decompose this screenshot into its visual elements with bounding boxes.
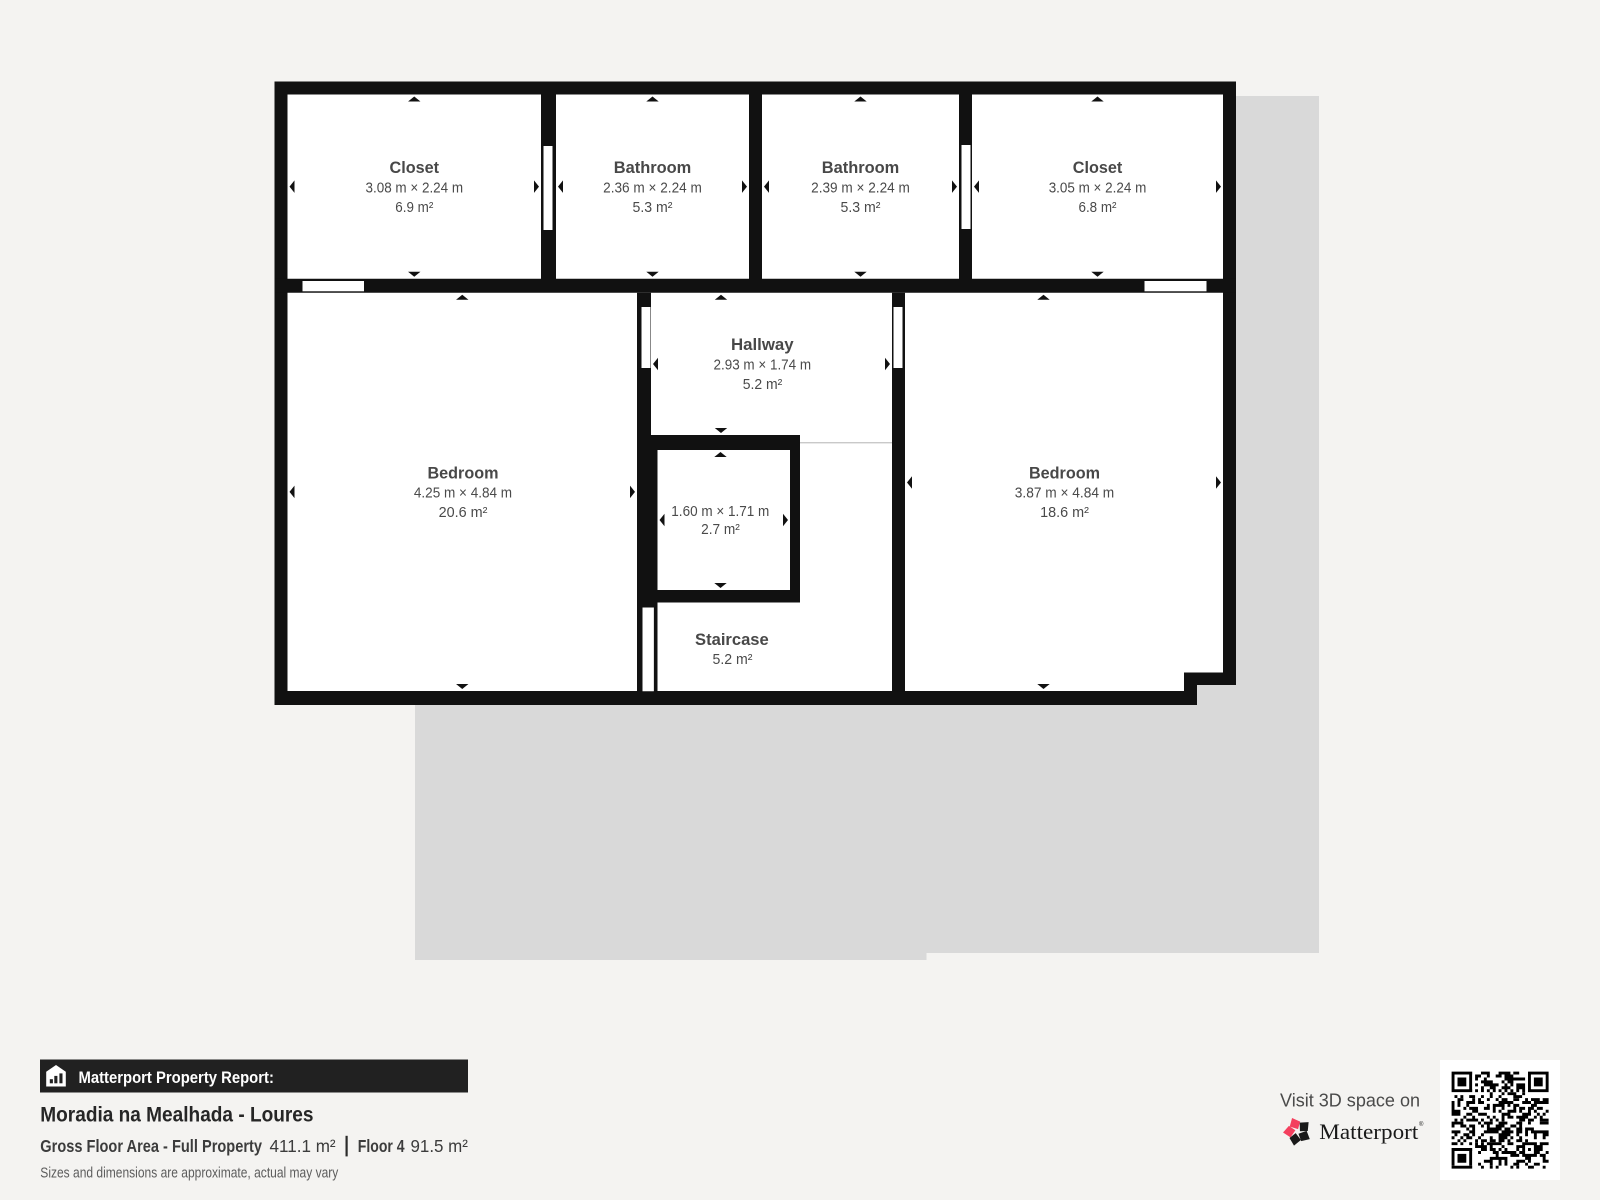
svg-text:Bedroom: Bedroom	[428, 464, 499, 483]
svg-text:Moradia na Mealhada - Loures: Moradia na Mealhada - Loures	[40, 1102, 313, 1126]
svg-text:91.5 m²: 91.5 m²	[411, 1136, 469, 1156]
svg-text:411.1 m²: 411.1 m²	[270, 1136, 336, 1156]
svg-text:5.3 m²: 5.3 m²	[841, 200, 881, 216]
svg-text:Gross Floor Area - Full Proper: Gross Floor Area - Full Property	[40, 1136, 262, 1156]
svg-text:20.6 m²: 20.6 m²	[439, 505, 488, 521]
svg-text:6.9 m²: 6.9 m²	[395, 200, 433, 216]
svg-text:Bathroom: Bathroom	[822, 158, 900, 177]
svg-text:Matterport Property Report:: Matterport Property Report:	[79, 1069, 274, 1087]
svg-text:6.8 m²: 6.8 m²	[1079, 200, 1117, 216]
svg-text:3.87 m × 4.84 m: 3.87 m × 4.84 m	[1015, 486, 1114, 502]
svg-text:2.93 m × 1.74 m: 2.93 m × 1.74 m	[714, 357, 812, 373]
svg-text:18.6 m²: 18.6 m²	[1040, 505, 1089, 521]
svg-text:Sizes and dimensions are appro: Sizes and dimensions are approximate, ac…	[40, 1166, 339, 1182]
svg-text:Hallway: Hallway	[731, 335, 794, 354]
svg-text:Matterport: Matterport	[1319, 1119, 1418, 1144]
svg-text:4.25 m × 4.84 m: 4.25 m × 4.84 m	[414, 486, 512, 502]
svg-text:Bathroom: Bathroom	[614, 158, 692, 177]
svg-text:5.2 m²: 5.2 m²	[743, 377, 783, 393]
svg-text:Visit 3D space on: Visit 3D space on	[1280, 1090, 1420, 1110]
svg-text:2.39 m × 2.24 m: 2.39 m × 2.24 m	[811, 181, 910, 197]
svg-text:®: ®	[1419, 1121, 1424, 1128]
svg-text:Staircase: Staircase	[695, 630, 769, 649]
svg-text:Closet: Closet	[390, 158, 440, 177]
svg-text:Closet: Closet	[1073, 158, 1123, 177]
svg-text:5.2 m²: 5.2 m²	[713, 652, 753, 668]
svg-text:1.60 m × 1.71 m: 1.60 m × 1.71 m	[671, 504, 769, 520]
svg-text:3.08 m × 2.24 m: 3.08 m × 2.24 m	[366, 181, 464, 197]
svg-text:5.3 m²: 5.3 m²	[633, 200, 673, 216]
svg-text:2.36 m × 2.24 m: 2.36 m × 2.24 m	[603, 181, 702, 197]
svg-text:2.7 m²: 2.7 m²	[701, 522, 740, 538]
svg-text:3.05 m × 2.24 m: 3.05 m × 2.24 m	[1049, 181, 1147, 197]
svg-text:Bedroom: Bedroom	[1029, 464, 1100, 483]
svg-text:Floor 4: Floor 4	[358, 1136, 405, 1156]
